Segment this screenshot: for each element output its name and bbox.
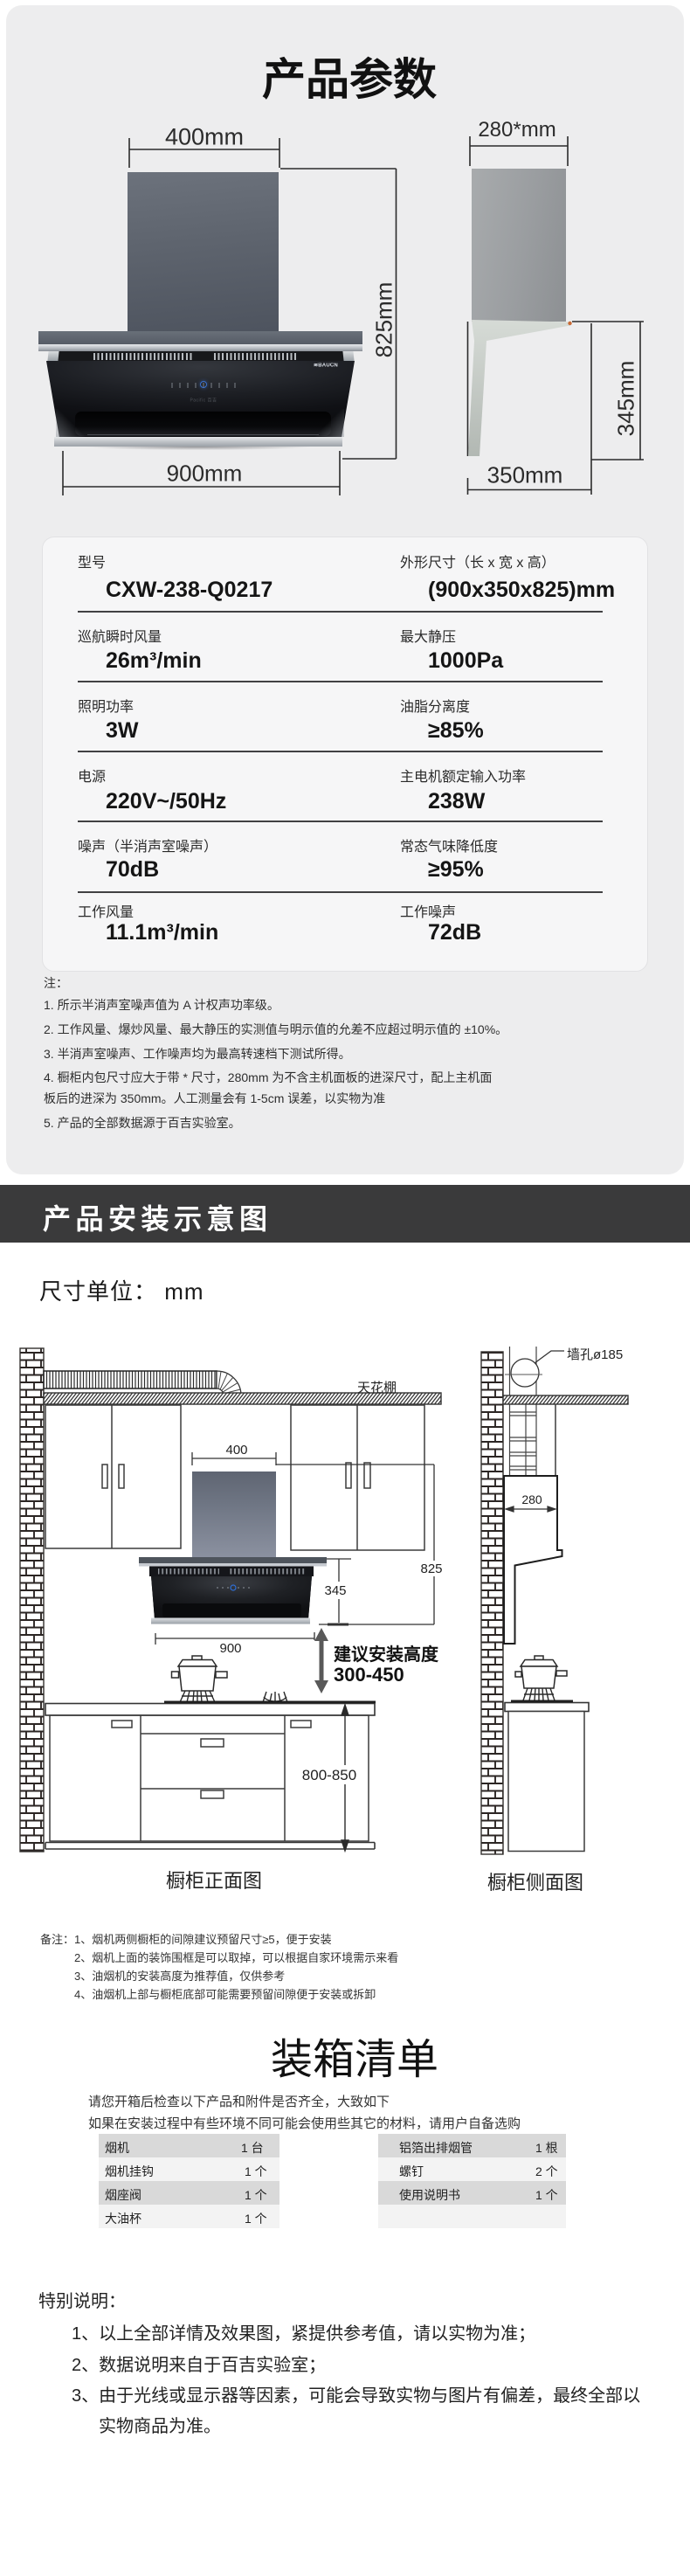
- svg-text:建议安装高度: 建议安装高度: [334, 1644, 439, 1665]
- svg-text:825: 825: [420, 1562, 442, 1576]
- svg-text:天花棚: 天花棚: [357, 1381, 397, 1395]
- svg-text:400: 400: [225, 1443, 247, 1458]
- svg-text:280: 280: [521, 1492, 542, 1506]
- svg-text:800-850: 800-850: [302, 1767, 356, 1783]
- svg-text:墙孔ø185: 墙孔ø185: [567, 1347, 623, 1362]
- svg-text:300-450: 300-450: [334, 1664, 404, 1686]
- svg-text:900: 900: [219, 1641, 241, 1656]
- svg-text:345: 345: [324, 1583, 346, 1598]
